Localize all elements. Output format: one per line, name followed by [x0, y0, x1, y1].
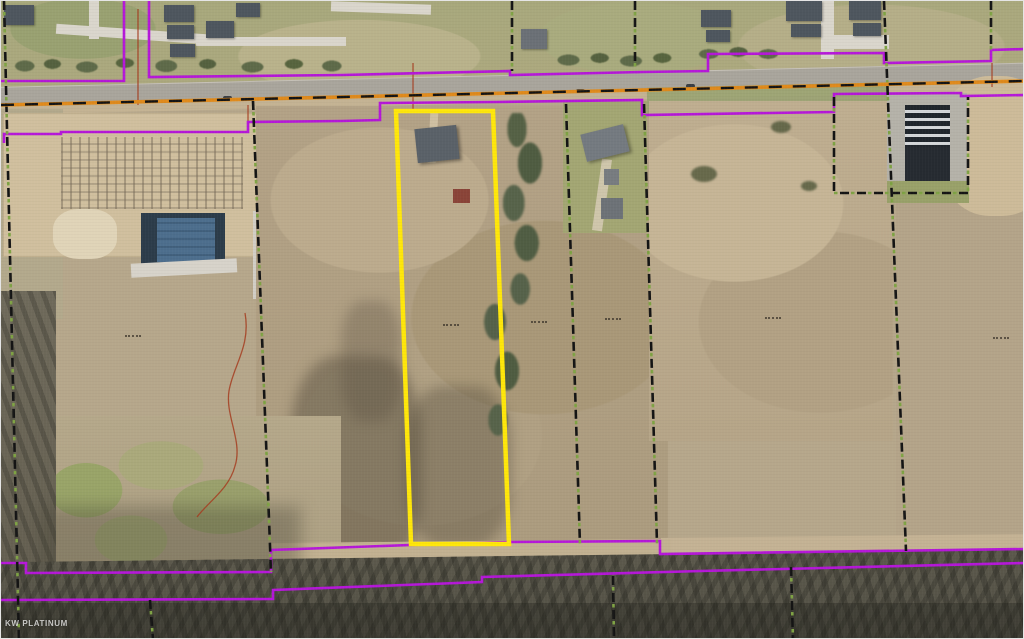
parcel-acreage-microlabel	[765, 317, 781, 319]
subject-parcel-outline	[396, 111, 509, 544]
parcel-acreage-microlabel	[993, 337, 1009, 339]
parcel-line-overlay	[1, 1, 1024, 639]
parcel-acreage-microlabel	[125, 335, 141, 337]
parcel-boundary-lines	[1, 1, 1024, 600]
parcel-acreage-microlabel	[531, 321, 547, 323]
parcel-acreage-microlabel	[605, 318, 621, 320]
watermark: KW PLATINUM	[5, 619, 68, 628]
aerial-map-canvas[interactable]: KW PLATINUM	[0, 0, 1024, 639]
parcel-acreage-microlabel	[443, 324, 459, 326]
